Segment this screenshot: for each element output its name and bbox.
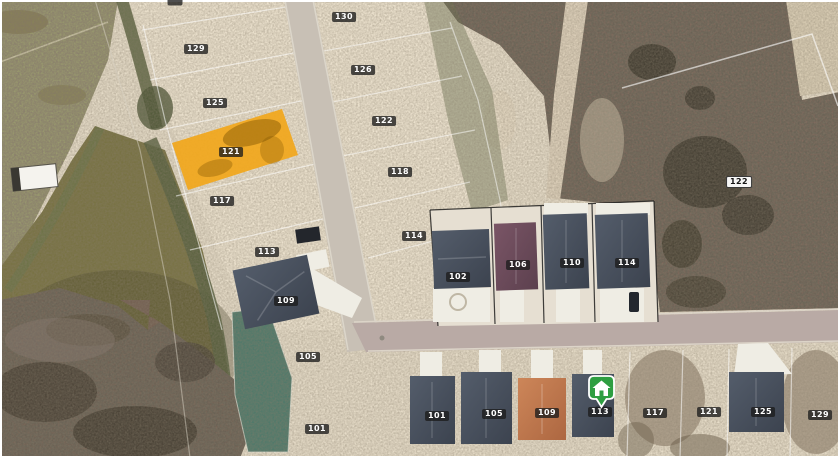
- manhole: [380, 336, 385, 341]
- marker-house-door: [600, 391, 604, 397]
- terrain-layer: [0, 0, 840, 458]
- highlight-mottle: [260, 136, 284, 164]
- parked-car: [629, 292, 639, 312]
- listing-house-marker[interactable]: [588, 375, 615, 409]
- shed: [11, 164, 58, 192]
- aerial-map: 1301291261251221211181221171141131101141…: [0, 0, 840, 458]
